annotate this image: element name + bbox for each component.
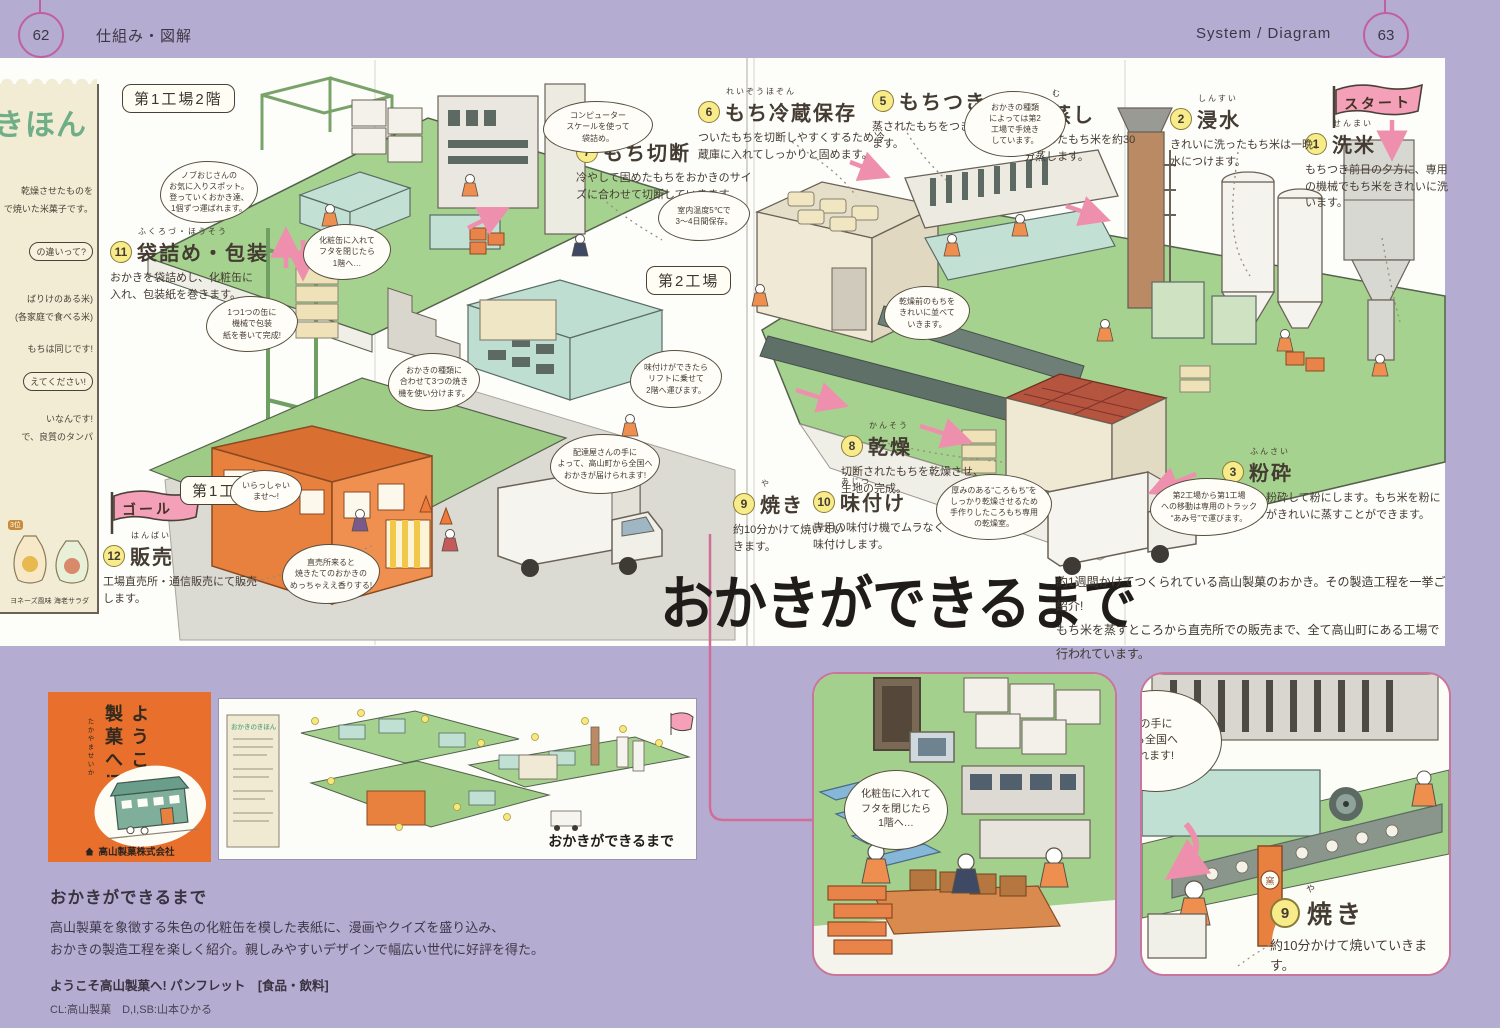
work-caption: ようこそ高山製菓へ! パンフレット [食品・飲料]: [50, 975, 544, 994]
step-furigana: や: [1306, 882, 1440, 895]
torn-paper-edge: [0, 75, 97, 85]
notes-title: きほん: [0, 100, 87, 144]
notes-fragment: (各家庭で食べる米): [15, 310, 93, 323]
notes-fragment: いなんです!: [46, 412, 93, 425]
speech-bubble: 化粧缶に入れて フタを閉じたら 1階へ…: [844, 770, 948, 850]
work-description: おかきができるまで 高山製菓を象徴する朱色の化粧缶を模した表紙に、漫画やクイズを…: [50, 884, 544, 1017]
section-tab-right: System / Diagram: [1196, 25, 1331, 42]
notes-fragment: ばりけのある米): [27, 292, 93, 305]
takayama-logo-mark: [84, 846, 95, 857]
step-number-badge: 2: [1170, 108, 1192, 130]
intro-line: 約1週間かけてつくられている高山製菓のおかき。その製造工程を一挙ご紹介!: [1056, 570, 1448, 618]
step-title: 袋詰め・包装: [137, 237, 269, 266]
area-label: 第2工場: [646, 266, 731, 295]
step-title: 粉砕: [1249, 457, 1293, 486]
step-title: 味付け: [840, 487, 906, 516]
area-label: 第1工場2階: [122, 84, 235, 113]
step-number-badge: 6: [698, 101, 720, 123]
okaki-basics-notes-panel: きほん 乾燥させたものをで焼いた米菓子です。の違いって?ばりけのある米)(各家庭…: [0, 84, 99, 614]
pamphlet-cover-thumbnail: たかやませいか ようこそ高山製菓へ! 高山製菓株式会社: [48, 692, 211, 862]
step-title: 焼き: [1307, 895, 1365, 931]
step-number-badge: 11: [110, 241, 132, 263]
step-furigana: ふんさい: [1250, 446, 1450, 457]
step-furigana: はんばい: [131, 530, 265, 541]
mini-notes-title: おかきのきほん: [231, 721, 276, 731]
step-furigana: かんそう: [869, 420, 993, 431]
cover-illustration-blob: [90, 760, 210, 851]
step-furigana: あじつ: [841, 476, 945, 487]
step-furigana: む: [1052, 88, 1146, 99]
intro-paragraph: 約1週間かけてつくられている高山製菓のおかき。その製造工程を一挙ご紹介! もち米…: [1056, 570, 1448, 666]
notes-fragment: の違いって?: [29, 242, 93, 261]
detail-crop-baking-line: 窯 の手に ら全国へ れます! や 9 焼き 約10分かけて焼いていきます。: [1140, 672, 1451, 976]
step-furigana: ふくろづ・ほうそう: [138, 226, 262, 237]
step-title: 販売: [130, 541, 174, 570]
step-callout-5: 5もちつき蒸されたもちをつきます。: [872, 86, 980, 152]
notes-fragment: もちは同じです!: [27, 342, 93, 355]
step-description: 工場直売所・通信販売にて販売します。: [103, 574, 265, 607]
work-body-line: 高山製菓を象徴する朱色の化粧缶を模した表紙に、漫画やクイズを盛り込み、: [50, 917, 544, 939]
step-number-badge: 10: [813, 491, 835, 513]
step-furigana: しんすい: [1198, 93, 1328, 104]
step-callout-12: はんばい12販売工場直売所・通信販売にて販売します。: [103, 530, 265, 607]
step-furigana: れいぞうほぞん: [726, 86, 886, 97]
notes-fragment: えてください!: [23, 372, 93, 391]
rank-badge: 3位: [8, 520, 23, 530]
step-number-badge: 12: [103, 545, 125, 567]
step-callout-10: あじつ10味付け専用の味付け機でムラなく味付けします。: [813, 476, 945, 553]
step-number-badge: 9: [733, 493, 755, 515]
step-number-badge: 9: [1270, 898, 1300, 928]
step-title: 乾燥: [868, 431, 912, 460]
page-number-left: 62: [18, 12, 64, 58]
speech-bubble: ノブおじさんの お気に入りスポット。 登っていくおかき達、 1個ずつ運ばれます。: [160, 161, 258, 223]
step-title: もち冷蔵保存: [725, 97, 857, 126]
work-credits: CL:高山製菓 D,I,SB:山本ひかる: [50, 1001, 544, 1017]
product-bags-illustration: [0, 524, 97, 594]
step-furigana: せんまい: [1333, 118, 1453, 129]
step-title: 洗米: [1332, 129, 1376, 158]
step-callout-11: ふくろづ・ほうそう11袋詰め・包装おかきを袋詰めし、化粧缶に入れ、包装紙を巻きま…: [110, 226, 262, 303]
step-number-badge: 8: [841, 435, 863, 457]
intro-line: もち米を蒸すところから直売所での販売まで、全て高山町にある工場で行われています。: [1056, 618, 1448, 666]
product-label: ヨネーズ風味: [10, 596, 52, 606]
company-logo-line: 高山製菓株式会社: [48, 844, 211, 858]
step-callout-2: しんすい2浸水きれいに洗ったもち米は一晩、水につけます。: [1170, 93, 1328, 170]
step-description: 約10分かけて焼いていきます。: [1270, 936, 1440, 976]
page-number-right: 63: [1363, 12, 1409, 58]
section-tab-left: 仕組み・図解: [96, 25, 192, 46]
step-description: きれいに洗ったもち米は一晩、水につけます。: [1170, 137, 1328, 170]
notes-fragment: 乾燥させたものを: [21, 184, 93, 197]
step-description: 専用の味付け機でムラなく味付けします。: [813, 520, 945, 553]
step-title: 浸水: [1197, 104, 1241, 133]
mini-caption: おかきができるまで: [548, 831, 674, 851]
step-callout-baking-detail: や 9 焼き 約10分かけて焼いていきます。: [1270, 882, 1440, 976]
product-label: 海老サラダ: [54, 596, 89, 606]
book-spread: 62 仕組み・図解 63 System / Diagram きほん 乾燥させたも…: [0, 0, 1500, 1028]
factory-storefront-illustration: [90, 760, 210, 851]
work-body-line: おかきの製造工程を楽しく紹介。親しみやすいデザインで幅広い世代に好評を得た。: [50, 939, 544, 961]
detail-crop-packing-floor: 化粧缶に入れて フタを閉じたら 1階へ…: [812, 672, 1117, 976]
cover-title-furigana: たかやませいか: [84, 718, 94, 778]
work-title: おかきができるまで: [50, 884, 544, 908]
notes-fragment: で焼いた米菓子です。: [4, 202, 93, 215]
step-title: 焼き: [760, 489, 804, 518]
pamphlet-spread-thumbnail: おかきのきほん おかきができるまで: [218, 698, 697, 860]
notes-fragment: で、良質のタンパ: [21, 430, 93, 443]
